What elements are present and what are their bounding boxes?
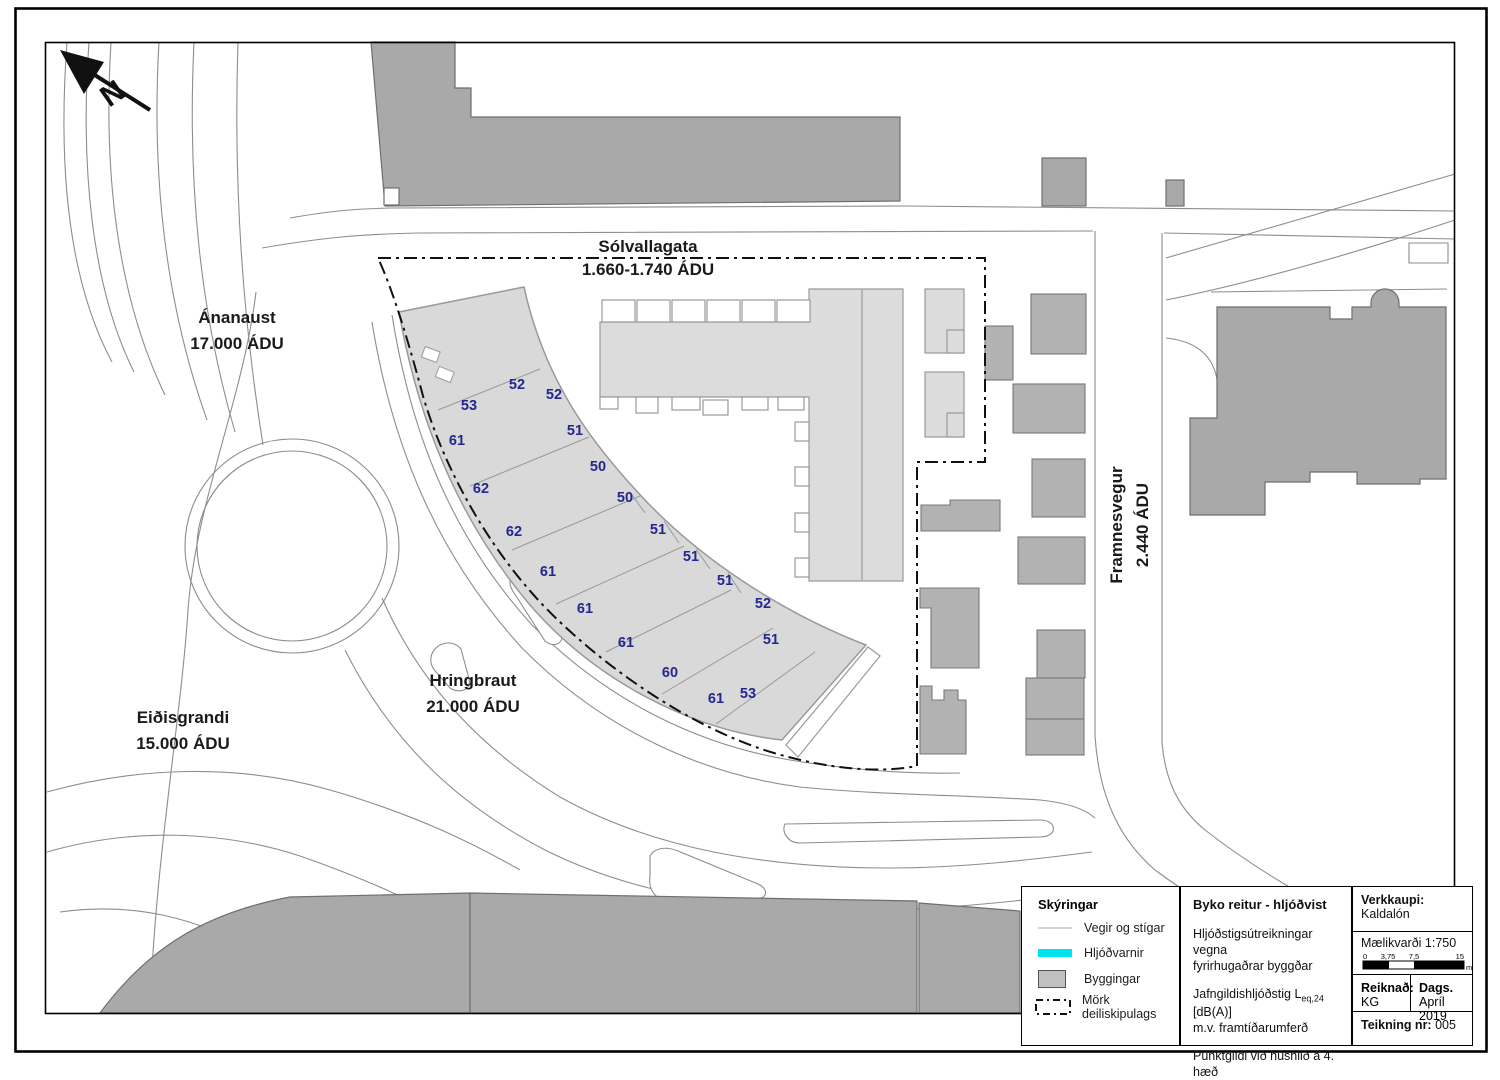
traffic-island	[784, 820, 1054, 843]
drawing-page: { "map": { "north_label": "N", "road_lab…	[0, 0, 1500, 1061]
building	[100, 893, 470, 1013]
noise-value: 51	[567, 423, 583, 439]
road-line	[157, 42, 207, 420]
scale-bar: 0 3,75 7,5 15 m	[1361, 951, 1473, 973]
building-notch	[947, 413, 964, 437]
legend-title: Skýringar	[1038, 897, 1179, 912]
noise-value: 52	[546, 387, 562, 403]
project-title: Byko reitur - hljóðvist	[1193, 897, 1339, 913]
legend-item-label: Byggingar	[1084, 972, 1140, 986]
building	[1018, 537, 1085, 584]
boundary-swatch	[1034, 998, 1072, 1016]
noise-value: 61	[618, 635, 634, 651]
noise-value: 52	[755, 596, 771, 612]
scale-tick: 0	[1363, 952, 1367, 961]
legend-item-label: Hljóðvarnir	[1084, 946, 1144, 960]
building	[1042, 158, 1086, 206]
noise-value: 51	[717, 573, 733, 589]
building	[920, 686, 966, 754]
north-arrow-icon: N	[60, 50, 150, 114]
road-label: Eiðisgrandi	[137, 708, 230, 727]
scale-label: Mælikvarði 1:750	[1361, 936, 1464, 950]
noise-value: 61	[449, 433, 465, 449]
client-label: Verkkaupi:	[1361, 893, 1464, 907]
building	[1031, 294, 1086, 354]
legend-item-buildings: Byggingar	[1038, 970, 1179, 988]
noise-value: 51	[763, 632, 779, 648]
noise-value: 50	[617, 490, 633, 506]
building	[985, 326, 1013, 380]
project-description: Hljóðstigsútreikningar vegna fyrirhugaðr…	[1193, 927, 1339, 974]
noise-value: 61	[708, 691, 724, 707]
existing-buildings-dark	[100, 42, 1446, 1013]
scale-tick: 3,75	[1381, 952, 1396, 961]
date: Dags. Apríl 2019	[1411, 975, 1472, 1011]
road-label: Sólvallagata	[598, 237, 698, 256]
road-line	[192, 42, 235, 432]
drawing-number-label: Teikning nr:	[1361, 1018, 1432, 1032]
building	[921, 500, 1000, 531]
scale-section: Mælikvarði 1:750 0 3,75 7,5 15 m	[1353, 931, 1472, 974]
shore-road-line	[150, 292, 256, 1013]
road-label: Hringbraut	[430, 671, 517, 690]
legend-box: Skýringar Vegir og stígar Hljóðvarnir By…	[1021, 886, 1180, 1046]
calculated-by: Reiknað: KG	[1353, 975, 1411, 1011]
traffic-island	[650, 848, 766, 901]
building-notch	[947, 330, 964, 353]
road-label: Ánanaust	[198, 308, 276, 327]
road-line	[290, 206, 1455, 218]
title-block-description: Byko reitur - hljóðvist Hljóðstigsútreik…	[1180, 886, 1352, 1046]
noise-value: 61	[540, 564, 556, 580]
road-line	[1211, 289, 1447, 292]
building-notch	[384, 188, 399, 205]
building	[919, 903, 1020, 1013]
point-values-note: Punktgildi við húshlið á 4. hæð	[1193, 1049, 1339, 1080]
building-swatch	[1038, 970, 1074, 988]
existing-buildings-mid	[920, 294, 1086, 755]
building	[1026, 719, 1084, 755]
road-line	[47, 771, 520, 870]
drawing-number-value: 005	[1435, 1018, 1456, 1032]
road-traffic-label: 17.000 ÁDU	[190, 334, 284, 353]
legend-item-boundary: Mörk deiliskipulags	[1034, 997, 1179, 1017]
scale-unit: m	[1466, 963, 1472, 972]
legend-item-label: Vegir og stígar	[1084, 921, 1165, 935]
building	[1190, 289, 1446, 515]
building	[1013, 384, 1085, 433]
building	[1026, 678, 1084, 719]
noise-value: 62	[506, 524, 522, 540]
legend-item-roads: Vegir og stígar	[1038, 920, 1179, 936]
road-traffic-label: 2.440 ÁDU	[1133, 483, 1152, 567]
building	[1166, 180, 1184, 206]
roundabout-outer	[185, 439, 399, 653]
roads-line-swatch	[1038, 927, 1074, 929]
calc-date-section: Reiknað: KG Dags. Apríl 2019	[1353, 974, 1472, 1011]
noise-value: 53	[740, 686, 756, 702]
noise-value: 50	[590, 459, 606, 475]
dash-dot-swatch	[1034, 998, 1072, 1016]
client-section: Verkkaupi: Kaldalón	[1353, 887, 1472, 931]
noise-value: 62	[473, 481, 489, 497]
road-label: Framnesvegur	[1107, 466, 1126, 584]
noise-value: 53	[461, 398, 477, 414]
noise-value: 51	[683, 549, 699, 565]
noise-value: 61	[577, 601, 593, 617]
legend-item-noise-barriers: Hljóðvarnir	[1038, 945, 1179, 961]
road-traffic-label: 15.000 ÁDU	[136, 734, 230, 753]
noise-value: 51	[650, 522, 666, 538]
title-block-info: Verkkaupi: Kaldalón Mælikvarði 1:750 0 3…	[1352, 886, 1473, 1046]
legend-item-label: Mörk deiliskipulags	[1082, 993, 1179, 1021]
noise-value: 52	[509, 377, 525, 393]
road-traffic-label: 21.000 ÁDU	[426, 697, 520, 716]
building	[1037, 630, 1085, 678]
building	[470, 893, 917, 1013]
road-line	[237, 42, 263, 445]
scale-tick: 15	[1456, 952, 1464, 961]
building	[920, 588, 979, 668]
noise-value: 60	[662, 665, 678, 681]
building	[371, 42, 900, 206]
scale-tick: 7,5	[1409, 952, 1419, 961]
road-plot-outline	[1409, 243, 1448, 263]
client-value: Kaldalón	[1361, 907, 1464, 921]
building	[1032, 459, 1085, 517]
road-traffic-label: 1.660-1.740 ÁDU	[582, 260, 714, 279]
metric-description: Jafngildishljóðstig Leq,24 [dB(A)] m.v. …	[1193, 987, 1339, 1036]
roundabout-inner	[197, 451, 387, 641]
noise-barrier-swatch	[1038, 949, 1074, 957]
